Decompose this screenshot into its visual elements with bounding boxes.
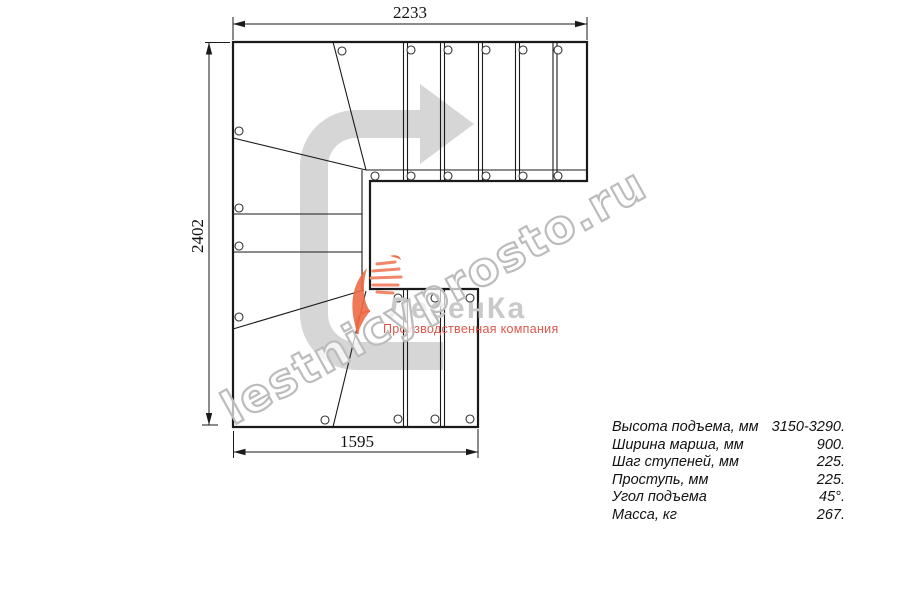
spec-label: Шаг ступеней, мм bbox=[612, 454, 739, 472]
spec-value: 225. bbox=[817, 472, 845, 490]
spec-label: Угол подъема bbox=[612, 489, 707, 507]
spec-label: Проступь, мм bbox=[612, 472, 708, 490]
spec-value: 267. bbox=[817, 507, 845, 525]
specs-table: Высота подъема, мм 3150-3290. Ширина мар… bbox=[612, 419, 845, 524]
spec-label: Масса, кг bbox=[612, 507, 677, 525]
spec-row: Проступь, мм 225. bbox=[612, 472, 845, 490]
spec-value: 225. bbox=[817, 454, 845, 472]
stair-plan-page: 2233 2402 1595 bbox=[0, 0, 900, 600]
spec-row: Масса, кг 267. bbox=[612, 507, 845, 525]
spec-label: Высота подъема, мм bbox=[612, 419, 759, 437]
spec-row: Высота подъема, мм 3150-3290. bbox=[612, 419, 845, 437]
spec-value: 900. bbox=[817, 437, 845, 455]
brand-name: ЛесенКа bbox=[388, 294, 526, 324]
brand-tagline: Производственная компания bbox=[383, 323, 559, 336]
spec-label: Ширина марша, мм bbox=[612, 437, 744, 455]
spec-row: Ширина марша, мм 900. bbox=[612, 437, 845, 455]
spec-value: 3150-3290. bbox=[772, 419, 845, 437]
spec-value: 45°. bbox=[819, 489, 845, 507]
spec-row: Угол подъема 45°. bbox=[612, 489, 845, 507]
spec-row: Шаг ступеней, мм 225. bbox=[612, 454, 845, 472]
